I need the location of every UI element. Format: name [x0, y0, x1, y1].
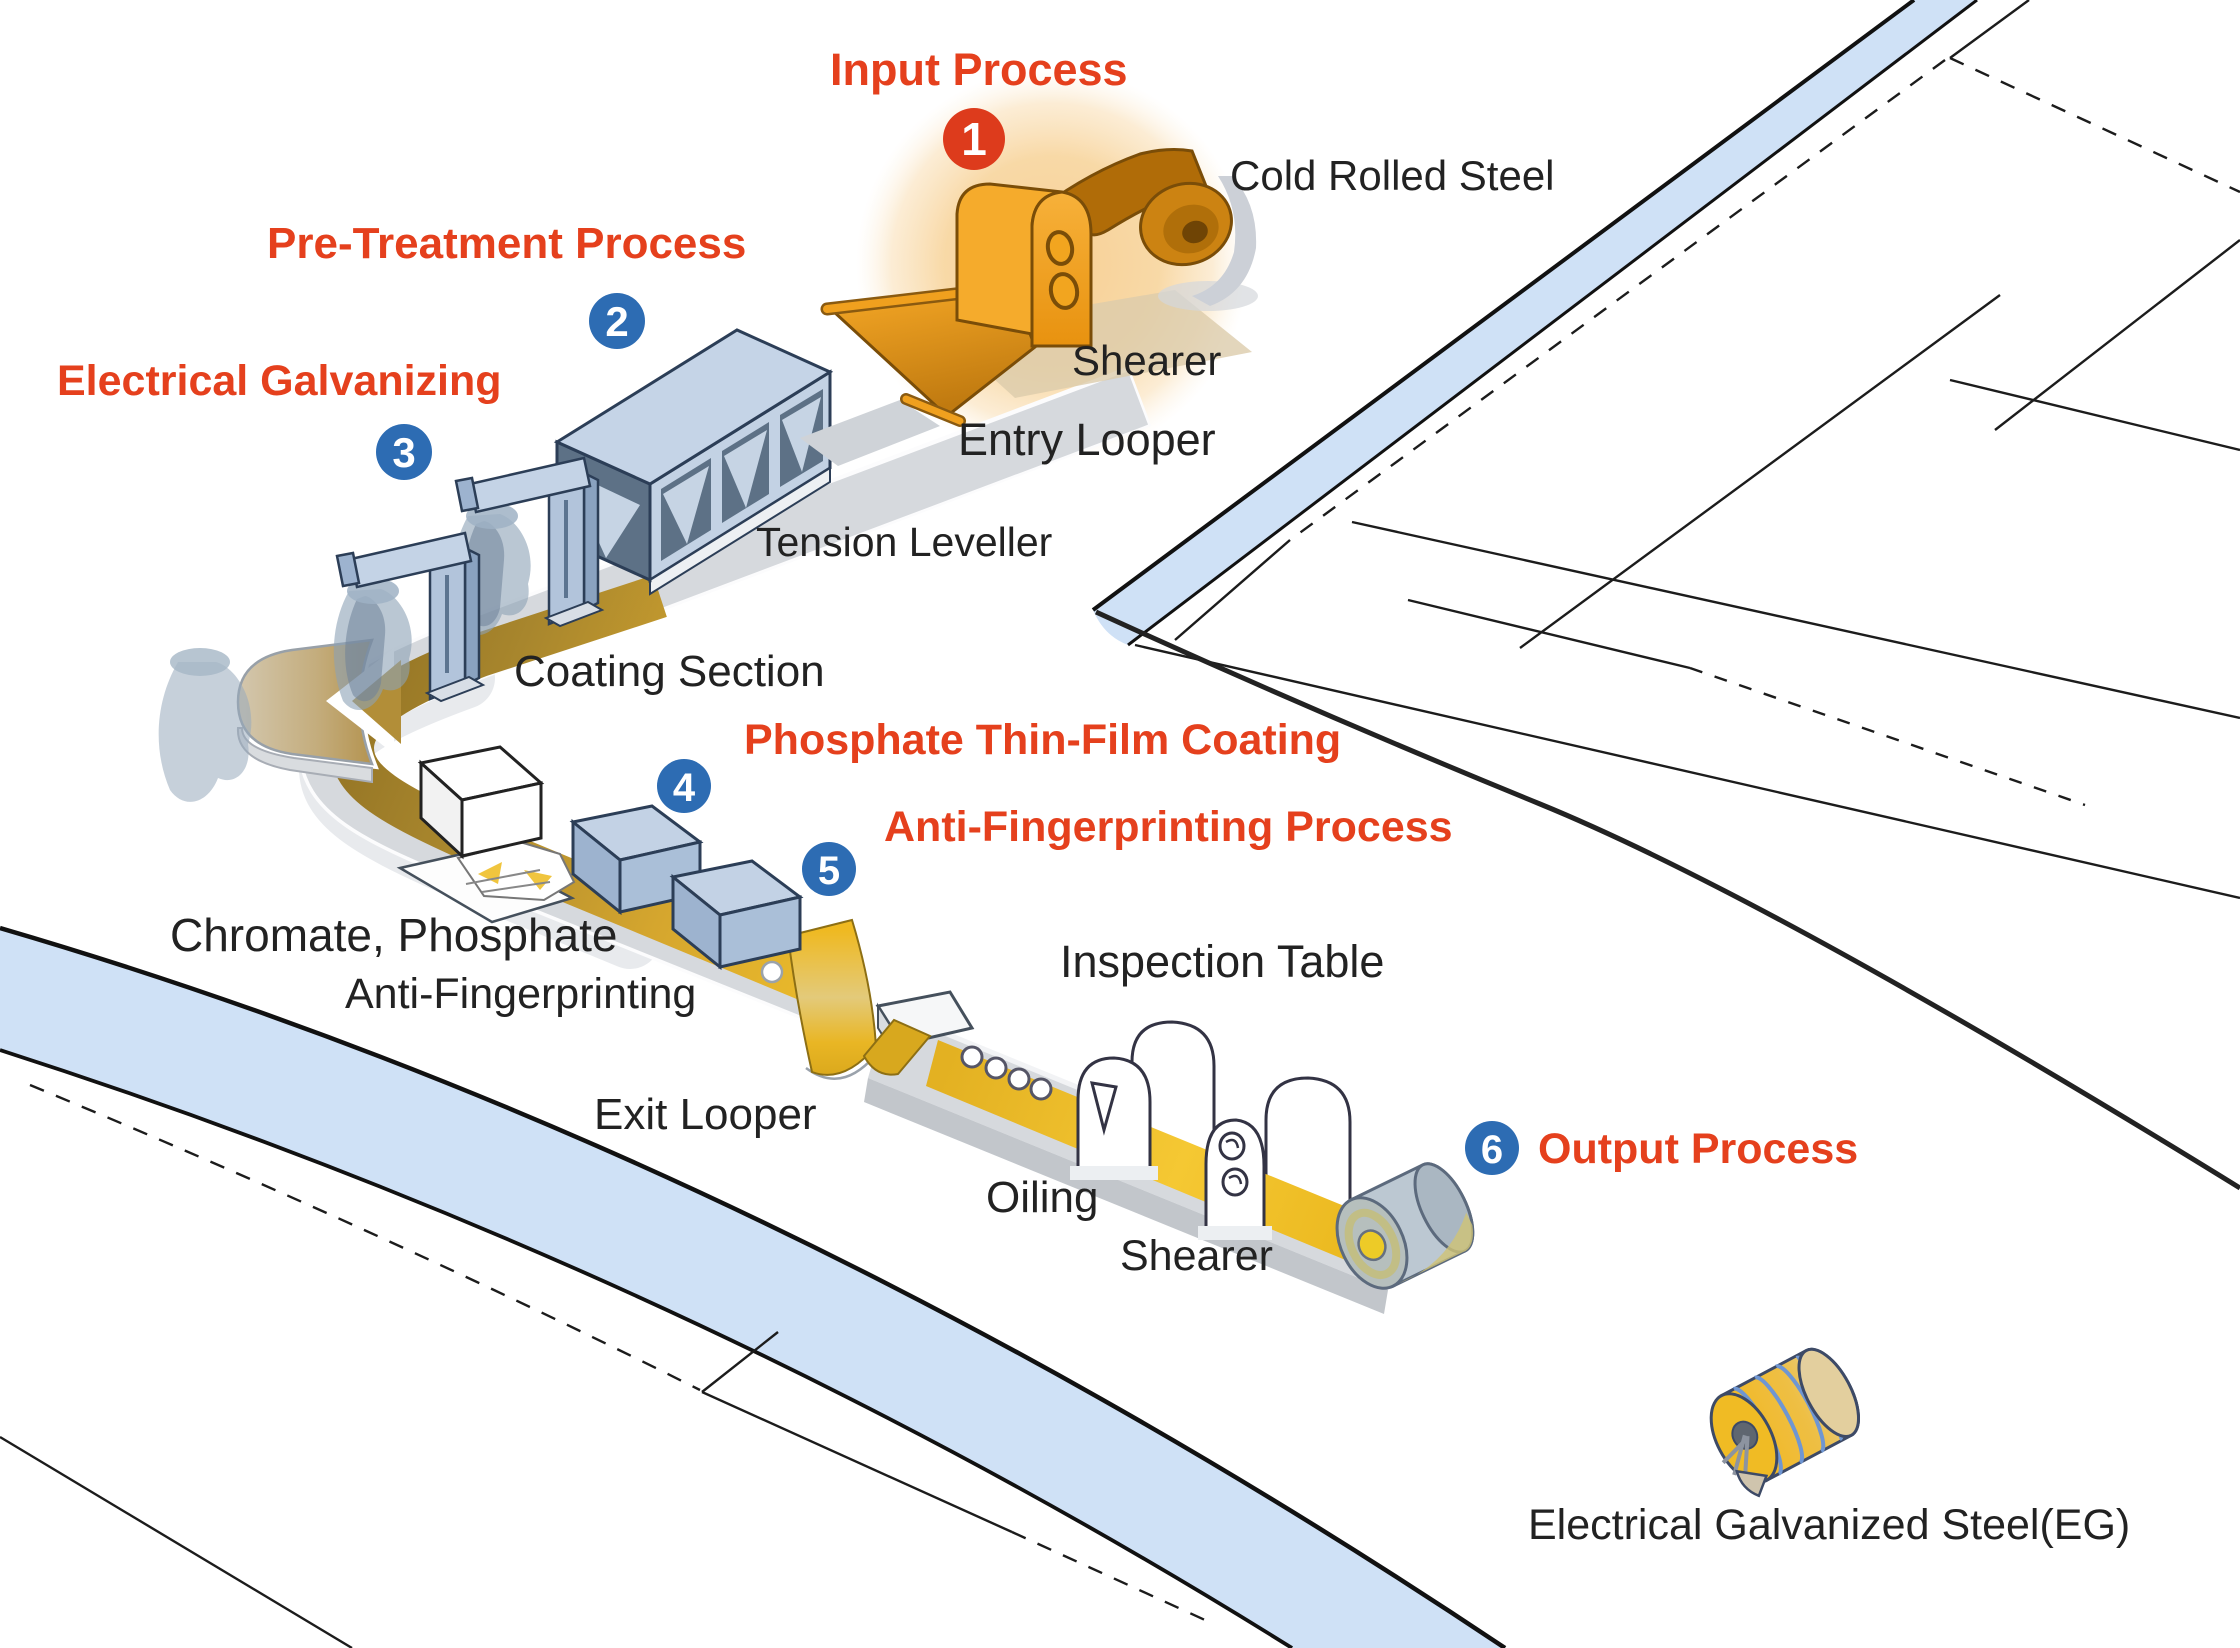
svg-text:Oiling: Oiling	[986, 1173, 1099, 1222]
svg-text:Output Process: Output Process	[1538, 1125, 1858, 1173]
svg-text:6: 6	[1481, 1128, 1503, 1172]
svg-text:4: 4	[673, 766, 696, 810]
svg-text:1: 1	[961, 113, 987, 165]
svg-text:Coating Section: Coating Section	[514, 647, 825, 696]
svg-text:5: 5	[818, 849, 840, 893]
svg-text:Input Process: Input Process	[830, 44, 1128, 95]
svg-text:Electrical Galvanizing: Electrical Galvanizing	[57, 357, 502, 405]
svg-text:Exit Looper: Exit Looper	[594, 1090, 817, 1139]
svg-text:Anti-Fingerprinting Process: Anti-Fingerprinting Process	[884, 803, 1453, 851]
svg-text:Chromate, Phosphate: Chromate, Phosphate	[170, 909, 618, 961]
svg-text:3: 3	[392, 429, 415, 476]
svg-text:Electrical Galvanized Steel(EG: Electrical Galvanized Steel(EG)	[1528, 1501, 2130, 1549]
svg-text:2: 2	[605, 298, 628, 345]
svg-text:Pre-Treatment Process: Pre-Treatment Process	[267, 219, 746, 268]
svg-text:Shearer: Shearer	[1120, 1232, 1273, 1280]
svg-text:Tension Leveller: Tension Leveller	[756, 519, 1052, 565]
svg-text:Phosphate Thin-Film Coating: Phosphate Thin-Film Coating	[744, 716, 1341, 764]
svg-text:Shearer: Shearer	[1072, 337, 1221, 384]
svg-text:Cold Rolled Steel: Cold Rolled Steel	[1230, 152, 1555, 199]
svg-text:Entry Looper: Entry Looper	[958, 414, 1216, 465]
svg-text:Inspection Table: Inspection Table	[1060, 936, 1384, 987]
svg-text:Anti-Fingerprinting: Anti-Fingerprinting	[345, 970, 696, 1018]
